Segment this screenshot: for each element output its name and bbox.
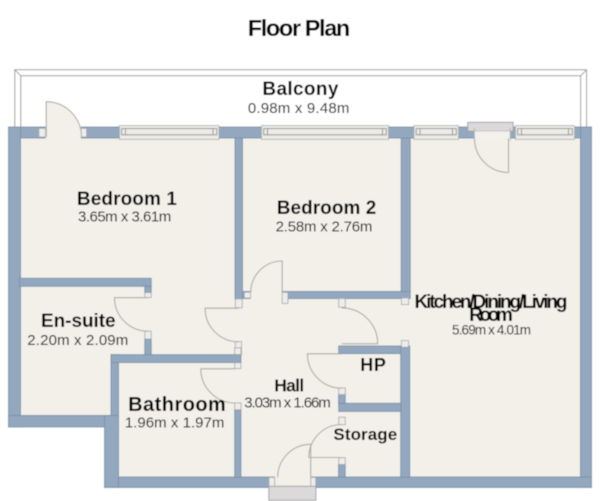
svg-text:3.03m x 1.66m: 3.03m x 1.66m	[244, 395, 331, 412]
svg-text:5.69m x 4.01m: 5.69m x 4.01m	[452, 323, 531, 338]
svg-text:Floor Plan: Floor Plan	[248, 15, 351, 41]
svg-text:En-suite: En-suite	[41, 311, 116, 332]
svg-text:Storage: Storage	[333, 425, 397, 444]
svg-text:Balcony: Balcony	[262, 79, 338, 100]
svg-text:Bedroom 2: Bedroom 2	[277, 198, 377, 219]
svg-text:Bedroom 1: Bedroom 1	[77, 189, 177, 210]
svg-text:2.20m x 2.09m: 2.20m x 2.09m	[27, 332, 128, 349]
svg-text:Bathroom: Bathroom	[128, 394, 226, 416]
svg-text:2.58m x 2.76m: 2.58m x 2.76m	[276, 219, 373, 236]
svg-text:HP: HP	[360, 355, 386, 375]
svg-text:Hall: Hall	[274, 376, 304, 396]
svg-text:3.65m x 3.61m: 3.65m x 3.61m	[78, 209, 171, 226]
svg-text:0.98m x 9.48m: 0.98m x 9.48m	[248, 100, 350, 117]
svg-text:1.96m x 1.97m: 1.96m x 1.97m	[125, 415, 225, 432]
